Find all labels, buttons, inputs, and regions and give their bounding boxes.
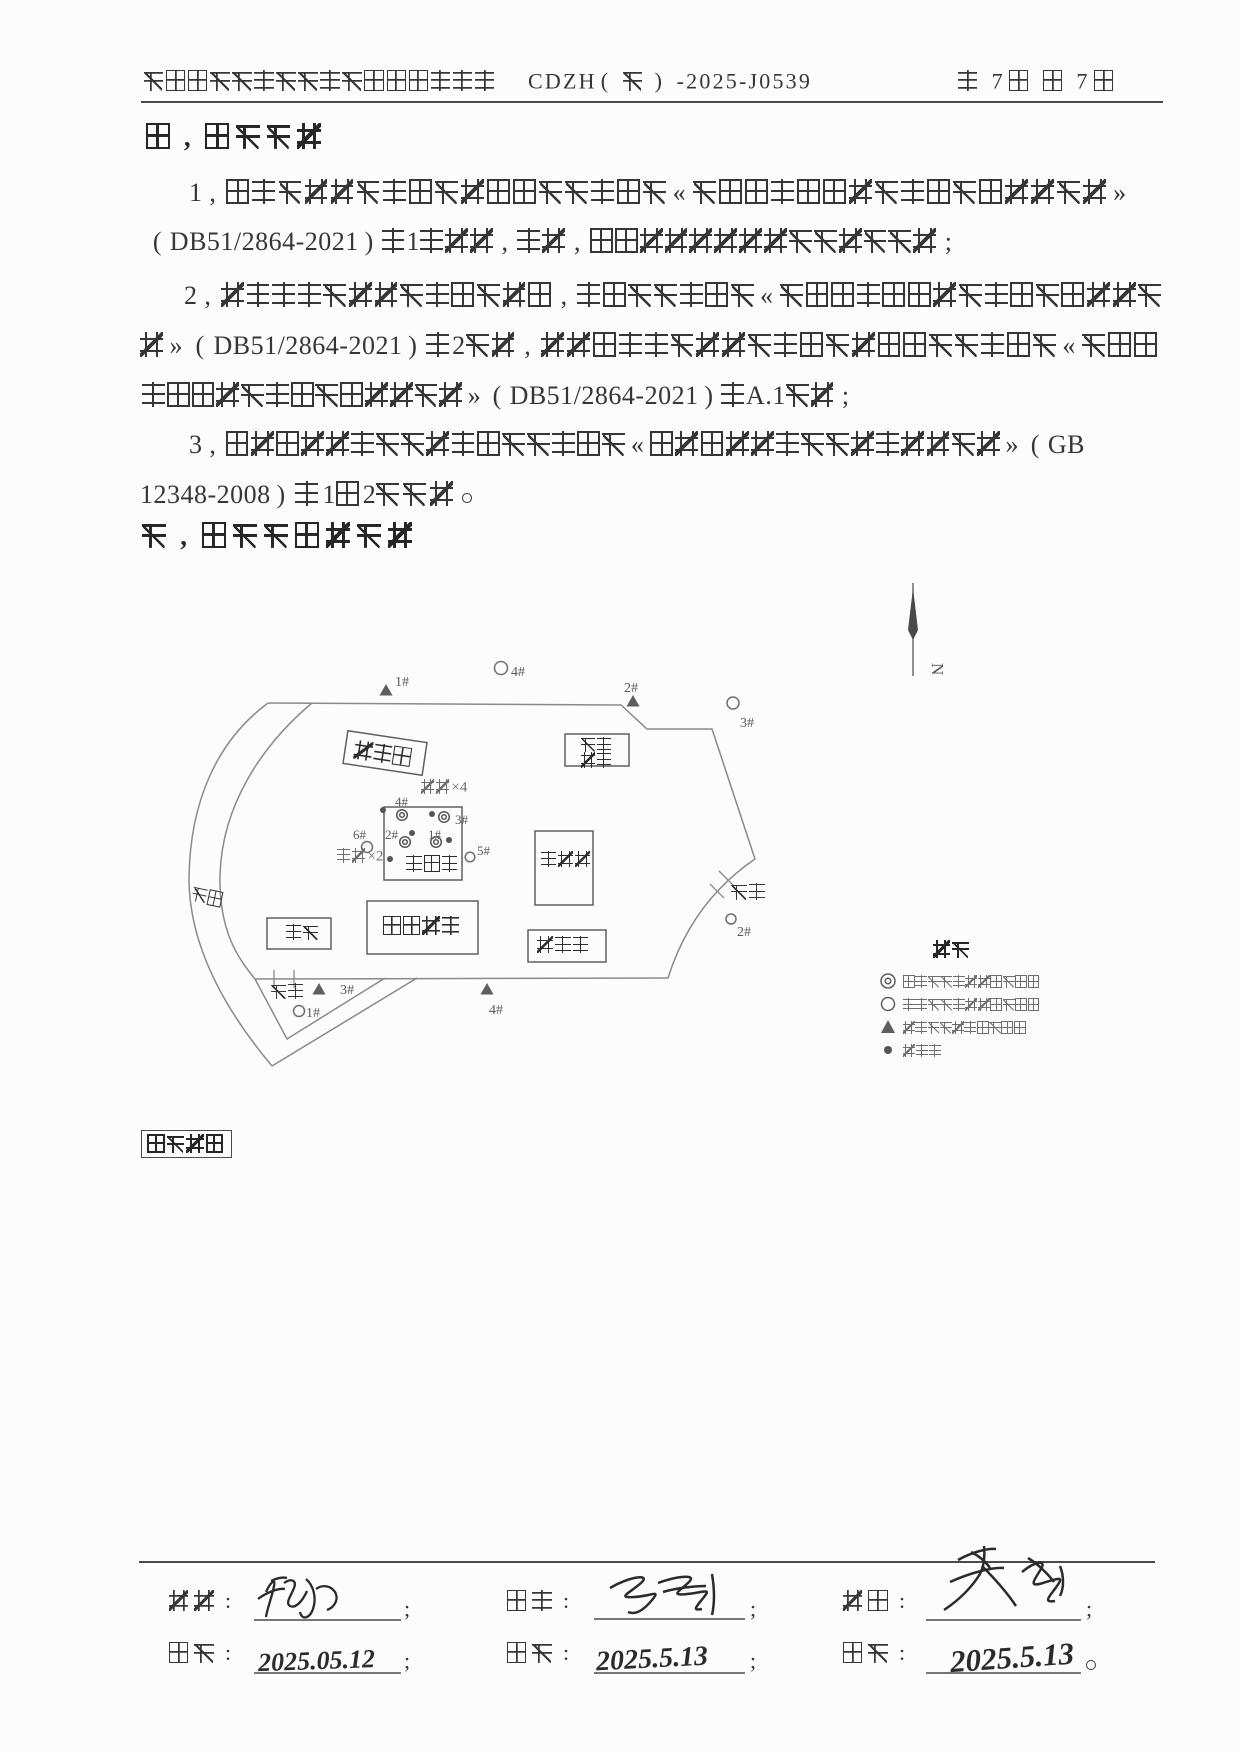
svg-text:1#: 1# bbox=[428, 827, 442, 842]
svg-text:2#: 2# bbox=[385, 827, 399, 842]
svg-text:2025.05.12: 2025.05.12 bbox=[257, 1644, 376, 1677]
svg-text:1#: 1# bbox=[395, 675, 409, 690]
svg-text:4#: 4# bbox=[395, 794, 409, 809]
svg-text:1#: 1# bbox=[306, 1006, 320, 1021]
svg-text:2#: 2# bbox=[624, 681, 638, 696]
svg-text:3#: 3# bbox=[455, 812, 469, 827]
svg-text:5#: 5# bbox=[477, 843, 491, 858]
svg-text:4#: 4# bbox=[511, 665, 525, 680]
svg-text:2#: 2# bbox=[737, 925, 751, 940]
svg-text:6#: 6# bbox=[353, 827, 367, 842]
svg-text:2025.5.13: 2025.5.13 bbox=[594, 1641, 708, 1678]
svg-text:4#: 4# bbox=[489, 1003, 503, 1018]
svg-text:N: N bbox=[928, 663, 947, 675]
svg-text:3#: 3# bbox=[340, 983, 354, 998]
svg-text:3#: 3# bbox=[740, 716, 754, 731]
